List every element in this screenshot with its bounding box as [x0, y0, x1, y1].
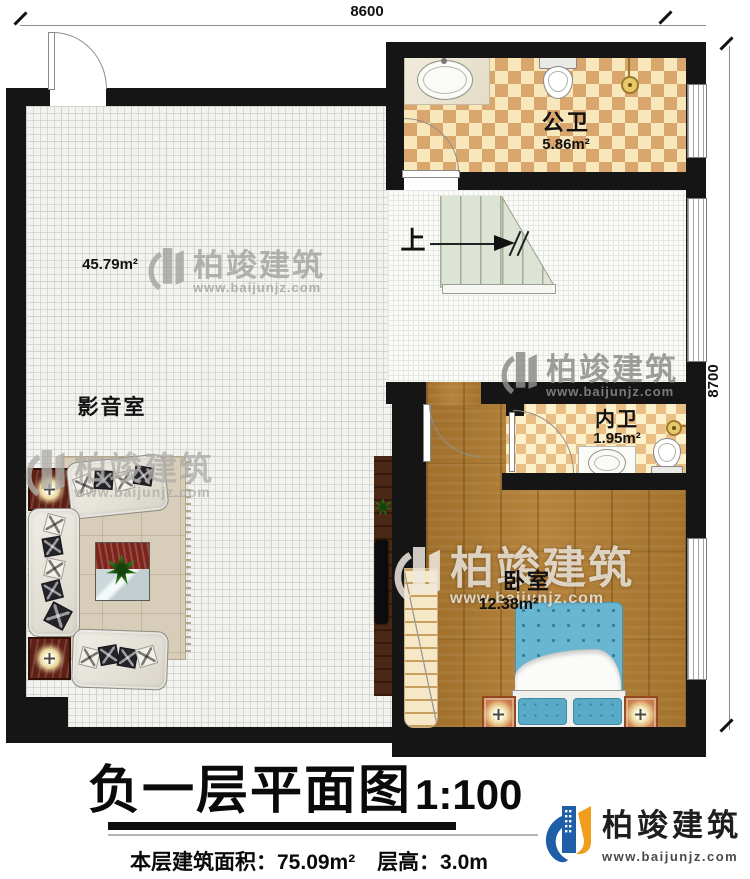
wall-bottom-bedroom [392, 727, 706, 757]
wall-innerbath-bottom [502, 473, 686, 490]
wall-bedroom-top-b [481, 382, 686, 404]
table-lamp [39, 648, 60, 669]
nightstand-lamp [630, 704, 651, 725]
tv-symbol [375, 540, 388, 624]
floorplan-canvas: 45.79m² 影音室 公卫 5.86m² 内卫 1.95m² 卧室 12.38… [0, 0, 750, 879]
sink-symbol [417, 60, 473, 100]
wall-bottom-media [6, 727, 398, 743]
dimension-top-value: 8600 [325, 2, 409, 22]
dimension-tick [719, 36, 733, 50]
entry-door-swing [53, 32, 107, 89]
bed-pillow [573, 698, 622, 725]
dimension-tick [13, 11, 27, 25]
wall-bath-bottom [458, 172, 686, 190]
inner-bath-label: 内卫 [583, 409, 651, 431]
plan-title: 负一层平面图 [88, 765, 412, 817]
bedroom-door-threshold [426, 382, 481, 406]
faucet-dot [441, 58, 447, 64]
media-room-area: 45.79m² [55, 257, 165, 274]
sofa-pillow [43, 557, 66, 580]
wall-left [6, 88, 26, 743]
dimension-tick [719, 718, 733, 732]
bed-pillow [518, 698, 567, 725]
table-lamp [39, 479, 60, 500]
sofa-pillow [43, 601, 73, 631]
floor-stats: 本层建筑面积：75.09m² 层高：3.0m [130, 846, 488, 876]
dimension-right-value: 8700 [705, 359, 723, 403]
end-table [28, 637, 71, 680]
stair-direction-line [430, 243, 496, 245]
stair-treads [440, 196, 502, 288]
plan-scale: 1:100 [415, 774, 522, 816]
shower-head-icon [666, 420, 682, 436]
window [687, 84, 707, 158]
wall-bath-top [386, 42, 706, 58]
stair-landing-edge [442, 284, 556, 294]
ladder-rack [404, 568, 438, 728]
shower-head-icon [621, 76, 639, 94]
sofa-top [65, 453, 169, 520]
sofa-bottom [71, 628, 169, 690]
dimension-line-top [20, 25, 706, 26]
public-bath-label: 公卫 [526, 111, 606, 135]
company-logo-icon [538, 799, 598, 874]
sofa-pillow [72, 473, 97, 498]
nightstand-lamp [488, 704, 509, 725]
bedroom-area: 12.38m² [461, 596, 556, 614]
stair-up-label: 上 [398, 228, 428, 256]
sofa-pillow [43, 513, 66, 536]
dimension-tick [658, 10, 672, 24]
bed-headboard [512, 690, 626, 731]
window [687, 198, 707, 362]
sofa-pillow [133, 465, 155, 487]
window [687, 538, 707, 680]
company-website: www.baijunjz.com [602, 849, 738, 864]
sofa-left [28, 508, 80, 637]
company-name: 柏竣建筑 [602, 810, 742, 841]
sofa-pillow [41, 535, 63, 557]
sofa-pillow [41, 579, 64, 602]
floor-area-text: 本层建筑面积：75.09m² [130, 851, 355, 874]
media-room-label: 影音室 [52, 396, 172, 419]
title-underline-thin [108, 834, 538, 836]
sofa-pillow [135, 645, 159, 669]
end-table [28, 468, 71, 511]
dimension-line-right [729, 46, 730, 730]
inner-bath-area: 1.95m² [583, 431, 651, 448]
wall-top [106, 88, 390, 106]
bedroom-label: 卧室 [492, 570, 562, 594]
title-underline-thick [108, 822, 456, 830]
public-bath-area: 5.86m² [526, 137, 606, 154]
floor-height-text: 层高：3.0m [377, 851, 488, 874]
sofa-pillow [94, 470, 114, 490]
